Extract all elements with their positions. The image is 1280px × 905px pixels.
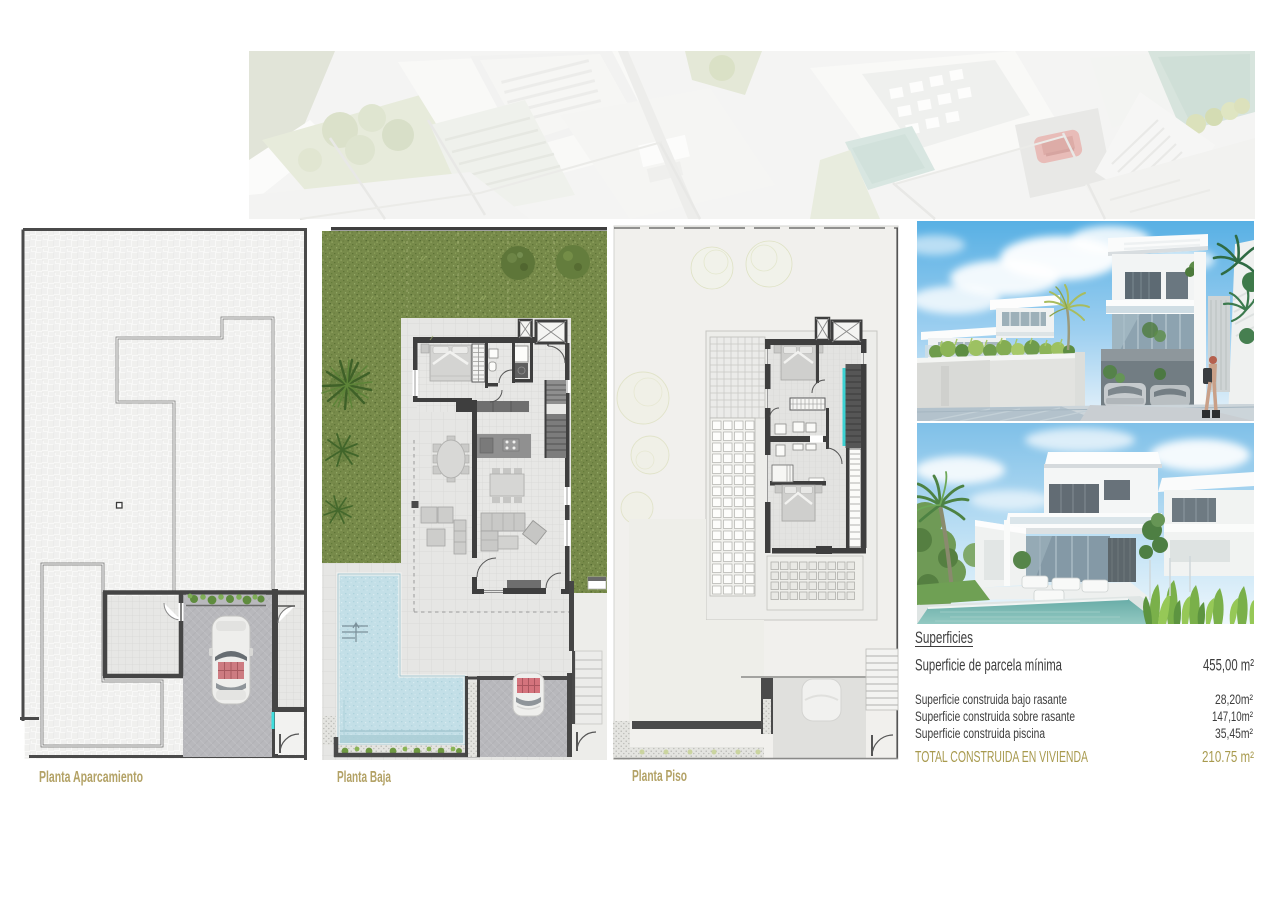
svg-text:28,20m²: 28,20m² [1215, 692, 1253, 707]
svg-text:35,45m²: 35,45m² [1215, 726, 1253, 741]
svg-text:Planta Aparcamiento: Planta Aparcamiento [39, 769, 143, 786]
svg-text:Planta Baja: Planta Baja [337, 769, 391, 786]
svg-text:Superficies: Superficies [915, 629, 973, 647]
svg-text:TOTAL CONSTRUIDA EN VIVIENDA: TOTAL CONSTRUIDA EN VIVIENDA [915, 749, 1088, 766]
svg-text:Superficie de parcela mínima: Superficie de parcela mínima [915, 657, 1063, 675]
svg-text:455,00 m²: 455,00 m² [1203, 657, 1254, 675]
svg-text:210.75 m²: 210.75 m² [1202, 749, 1254, 766]
svg-text:Superficie construida bajo ras: Superficie construida bajo rasante [915, 692, 1067, 707]
svg-text:Planta Piso: Planta Piso [632, 768, 687, 785]
svg-text:147,10m²: 147,10m² [1212, 709, 1253, 724]
svg-text:Superficie construida piscina: Superficie construida piscina [915, 726, 1045, 741]
svg-text:Superficie construida sobre ra: Superficie construida sobre rasante [915, 709, 1075, 724]
